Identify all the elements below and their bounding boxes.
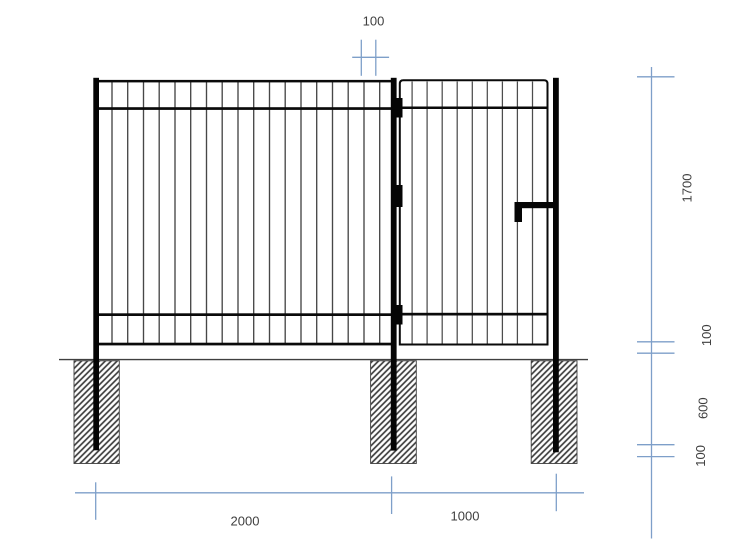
svg-text:100: 100 xyxy=(693,445,708,467)
svg-text:600: 600 xyxy=(696,397,711,419)
svg-text:2000: 2000 xyxy=(231,514,260,529)
svg-text:1700: 1700 xyxy=(680,174,695,203)
svg-text:1000: 1000 xyxy=(451,509,480,524)
svg-text:100: 100 xyxy=(363,14,385,29)
svg-text:100: 100 xyxy=(699,324,714,346)
